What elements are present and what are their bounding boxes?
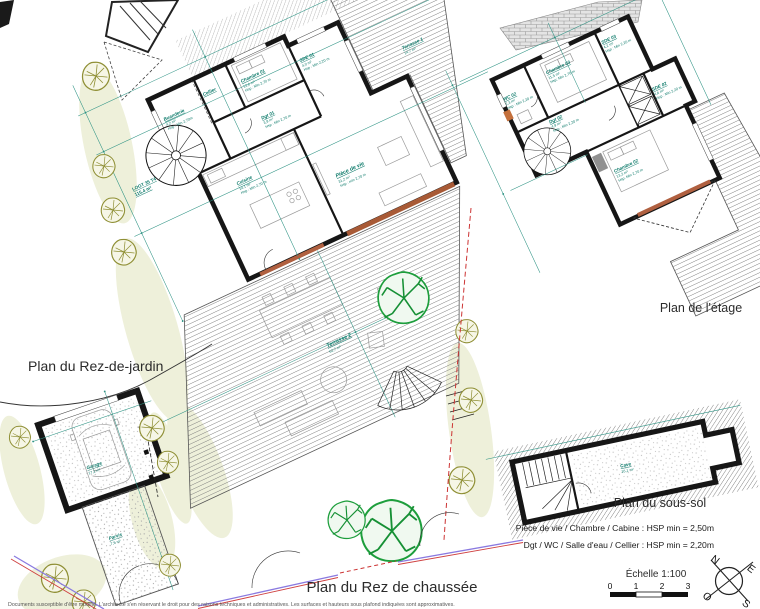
olive-tree-icon <box>82 62 109 90</box>
plan-title-soussol: Plan du sous-sol <box>614 496 706 510</box>
footer-disclaimer: Documents susceptible d'être modifié. L'… <box>8 602 455 608</box>
green-tree-icon <box>361 500 421 561</box>
scale-label: Échelle 1:100 <box>626 567 687 580</box>
olive-tree-icon <box>41 564 68 592</box>
plan-title-etage: Plan de l'étage <box>660 301 742 315</box>
scale-tick: 0 <box>608 581 613 591</box>
olive-tree-icon <box>449 467 475 494</box>
green-tree-icon <box>328 501 365 538</box>
olive-tree-icon <box>93 155 115 178</box>
note-hsp-1: Pièce de vie / Chambre / Cabine : HSP mi… <box>516 523 714 533</box>
plan-title-jardin: Plan du Rez-de-jardin <box>28 358 163 374</box>
floorplan-drawing: Buanderie 4,2 m² Hsp : Min 2,70m Cellier… <box>0 0 760 609</box>
plan-title-rdc: Plan du Rez de chaussée <box>307 579 478 596</box>
olive-tree-icon <box>459 388 482 412</box>
olive-tree-icon <box>9 426 30 448</box>
olive-tree-icon <box>101 198 124 222</box>
scale-tick: 1 <box>634 581 639 591</box>
scale-tick: 3 <box>686 581 691 591</box>
olive-tree-icon <box>157 451 178 473</box>
floorplan-sheet: Buanderie 4,2 m² Hsp : Min 2,70m Cellier… <box>0 0 760 609</box>
olive-tree-icon <box>159 554 180 576</box>
scale-tick: 2 <box>660 581 665 591</box>
note-hsp-2: Dgt / WC / Salle d'eau / Cellier : HSP m… <box>524 540 714 550</box>
olive-tree-icon <box>140 415 165 441</box>
green-tree-icon <box>378 272 429 323</box>
olive-tree-icon <box>112 239 137 265</box>
